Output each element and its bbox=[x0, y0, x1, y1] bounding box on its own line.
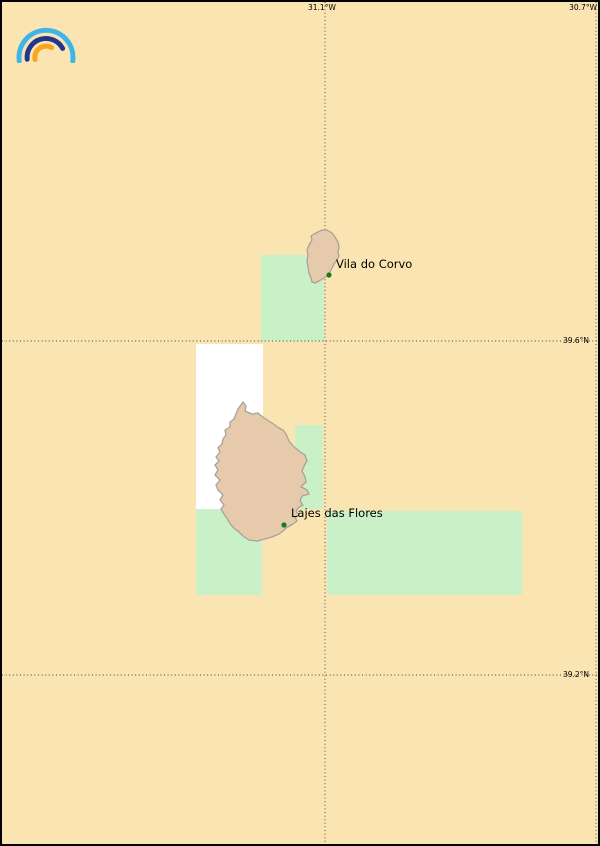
place-label-vila-do-corvo: Vila do Corvo bbox=[336, 258, 412, 271]
rainbow-arcs-logo bbox=[10, 13, 82, 63]
map-canvas[interactable]: 31.1°W 30.7°W 39.6°N 39.2°N Vila do Corv… bbox=[0, 0, 600, 846]
island-flores bbox=[215, 402, 309, 541]
marker-vila-do-corvo bbox=[326, 272, 331, 277]
place-label-lajes-das-flores: Lajes das Flores bbox=[291, 507, 383, 520]
map-graphics-layer bbox=[2, 2, 600, 846]
marker-lajes-das-flores bbox=[281, 522, 286, 527]
parallel-label-39-2n: 39.2°N bbox=[563, 670, 589, 679]
logo-arc-orange bbox=[35, 46, 52, 60]
parallel-label-39-6n: 39.6°N bbox=[563, 336, 589, 345]
meridian-label-31-1w: 31.1°W bbox=[308, 3, 336, 12]
meridian-label-30-7w: 30.7°W bbox=[569, 3, 597, 12]
island-corvo bbox=[307, 230, 339, 283]
